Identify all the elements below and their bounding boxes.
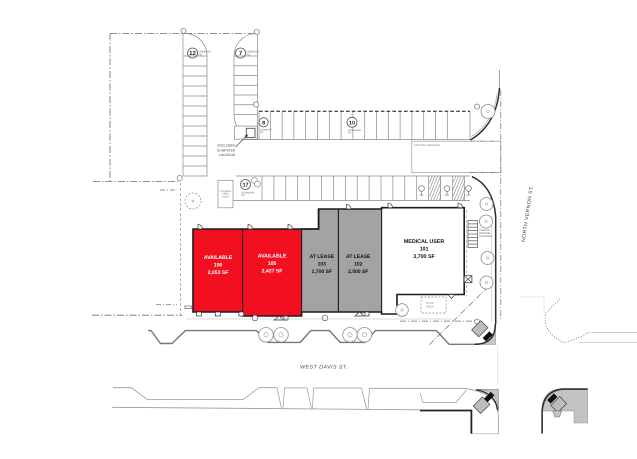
svg-text:AT LEASE: AT LEASE: [346, 254, 371, 260]
svg-text:DUMPSTER: DUMPSTER: [217, 148, 236, 152]
svg-text:17: 17: [243, 183, 249, 189]
svg-text:PS: PS: [199, 53, 203, 56]
svg-text:2,427 SF: 2,427 SF: [262, 269, 283, 275]
svg-text:PS: PS: [260, 131, 264, 134]
svg-text:106: 106: [214, 263, 223, 269]
svg-text:AT LEASE: AT LEASE: [310, 254, 335, 260]
svg-text:1,700 SF: 1,700 SF: [312, 269, 332, 275]
svg-text:PS: PS: [242, 194, 246, 197]
svg-text:105: 105: [268, 261, 277, 267]
svg-text:2,053 SF: 2,053 SF: [208, 270, 229, 276]
svg-text:102: 102: [354, 262, 363, 268]
svg-text:8: 8: [262, 121, 265, 127]
svg-text:STATIONS: STATIONS: [479, 235, 492, 238]
svg-text:12: 12: [189, 50, 196, 57]
svg-text:10: 10: [349, 121, 355, 127]
svg-text:103: 103: [318, 262, 327, 268]
svg-text:101: 101: [420, 247, 429, 253]
svg-text:PS: PS: [348, 131, 352, 134]
svg-text:MEDICAL USER: MEDICAL USER: [404, 239, 444, 245]
svg-text:AVAILABLE: AVAILABLE: [204, 255, 233, 261]
svg-text:EXISTING DRIVEWAY: EXISTING DRIVEWAY: [414, 144, 441, 147]
svg-text:WEST DAVIS ST.: WEST DAVIS ST.: [300, 364, 348, 370]
svg-text:ENCLOSED: ENCLOSED: [217, 144, 235, 148]
svg-text:3,700 SF: 3,700 SF: [413, 254, 435, 260]
svg-text:LOCATION: LOCATION: [219, 153, 236, 157]
svg-text:PS: PS: [247, 53, 251, 56]
svg-text:AVAILABLE: AVAILABLE: [258, 254, 287, 260]
svg-text:AREA: AREA: [426, 304, 434, 308]
svg-text:10X25: 10X25: [222, 195, 230, 198]
svg-text:2,000 SF: 2,000 SF: [348, 269, 368, 275]
